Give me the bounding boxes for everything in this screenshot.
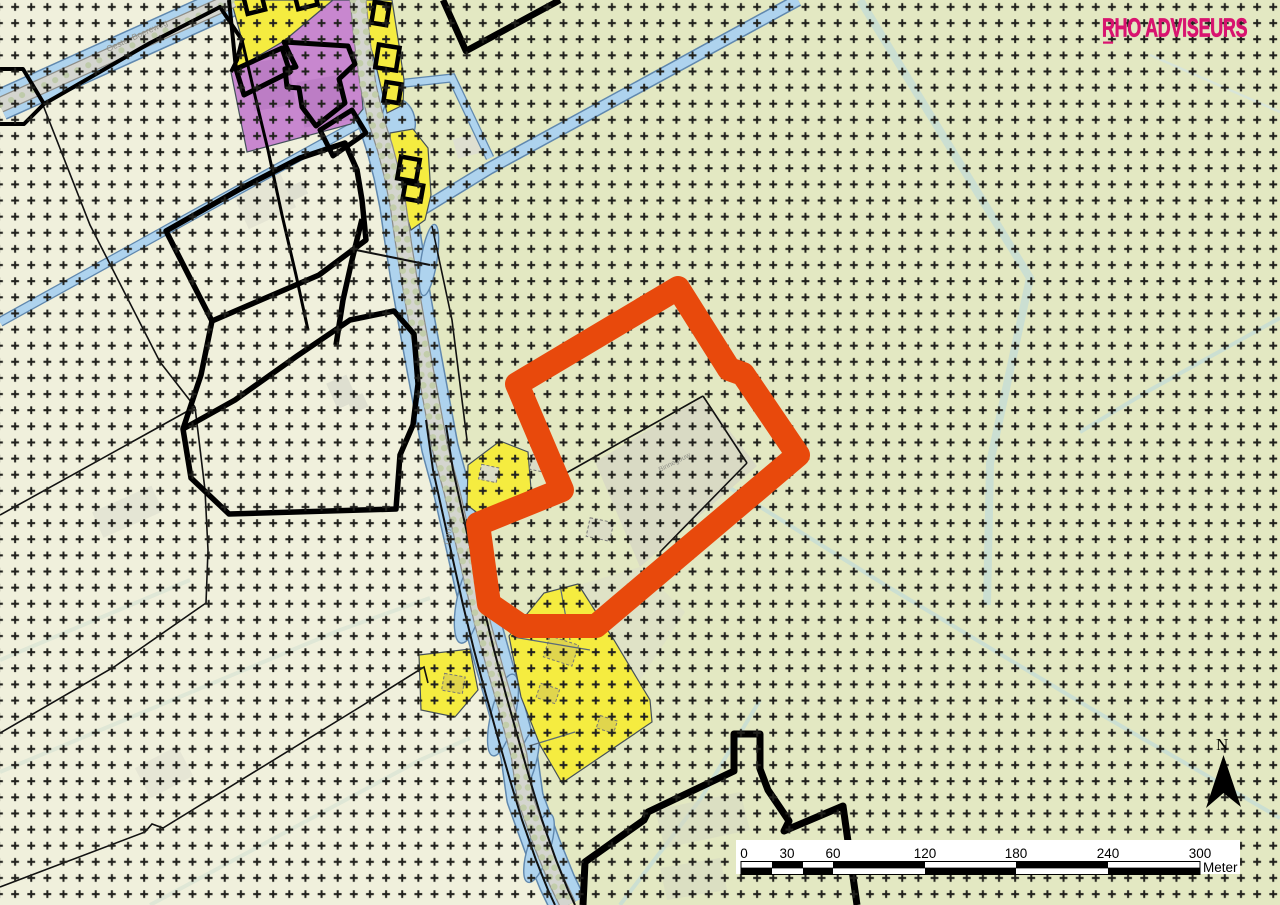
svg-text:N: N [1216,735,1228,754]
svg-text:RHO ADVISEURS: RHO ADVISEURS [1102,13,1247,42]
svg-text:30: 30 [779,846,794,861]
svg-text:180: 180 [1005,846,1028,861]
svg-text:0: 0 [740,846,748,861]
svg-text:240: 240 [1097,846,1120,861]
svg-text:120: 120 [914,846,937,861]
svg-text:300: 300 [1189,846,1212,861]
svg-text:60: 60 [825,846,840,861]
svg-text:Meter: Meter [1203,860,1238,875]
